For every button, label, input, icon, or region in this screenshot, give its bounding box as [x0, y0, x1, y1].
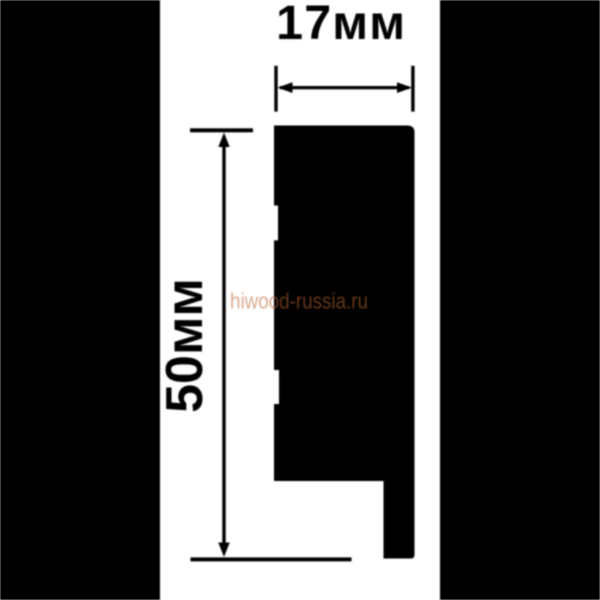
svg-text:hiwood-russia.ru: hiwood-russia.ru [230, 289, 368, 314]
svg-text:50мм: 50мм [156, 278, 214, 413]
svg-text:17мм: 17мм [276, 0, 406, 50]
